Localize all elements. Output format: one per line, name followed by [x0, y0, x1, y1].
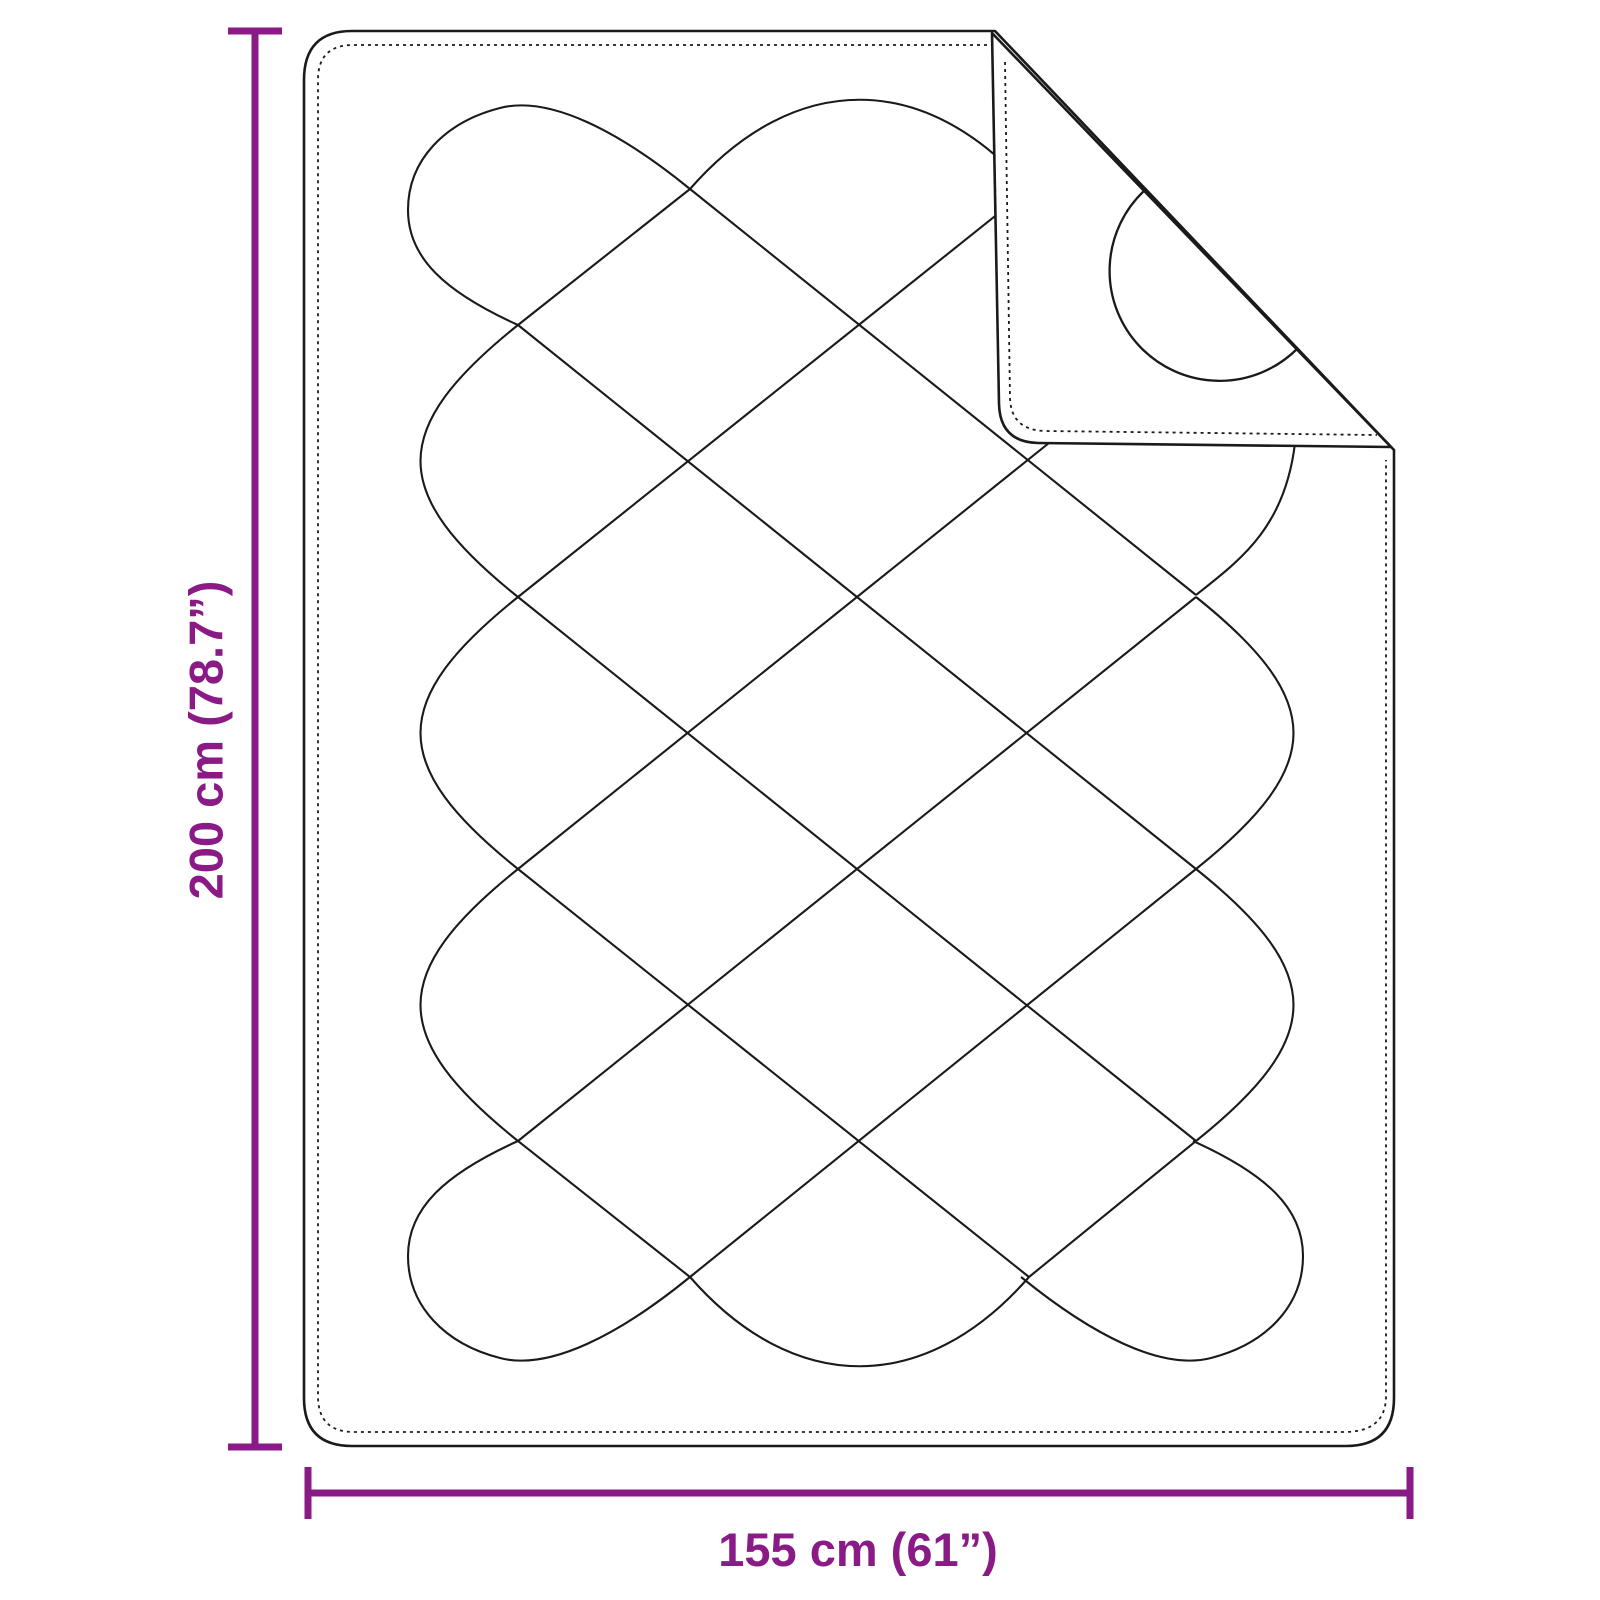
- product-dimension-diagram: 200 cm (78.7”) 155 cm (61”): [0, 0, 1600, 1600]
- height-label: 200 cm (78.7”): [180, 581, 233, 900]
- width-label: 155 cm (61”): [718, 1523, 998, 1576]
